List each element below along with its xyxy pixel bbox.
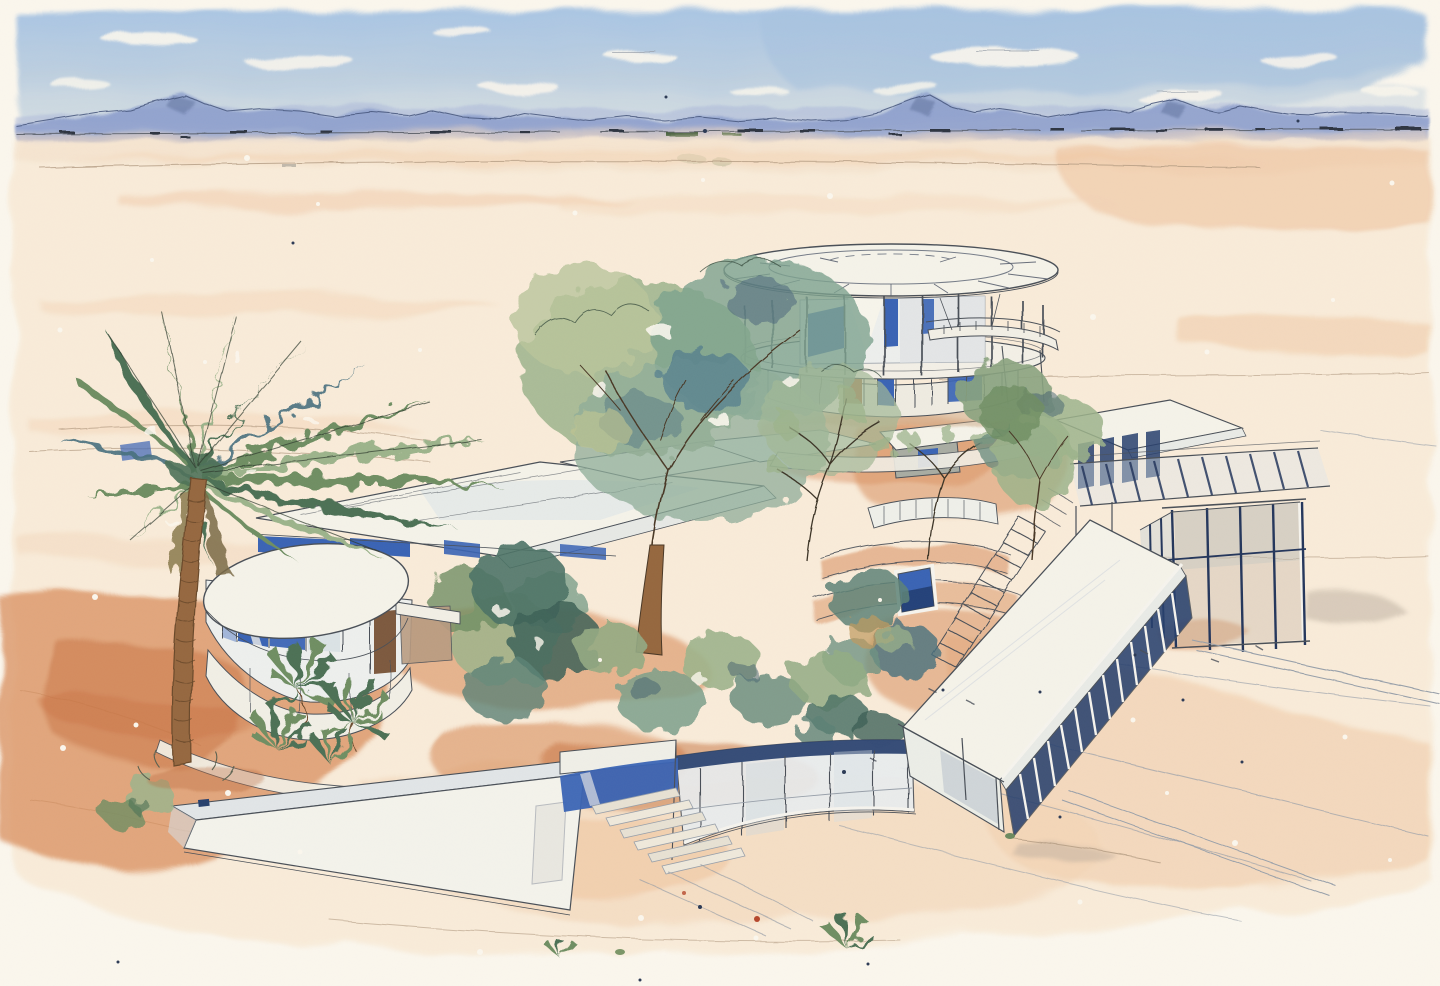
watercolor-painting: Aerial watercolor sketch of a modernist … bbox=[0, 0, 1440, 986]
painting-canvas: Aerial watercolor sketch of a modernist … bbox=[0, 0, 1440, 986]
paper-grain-overlay bbox=[0, 0, 1440, 986]
